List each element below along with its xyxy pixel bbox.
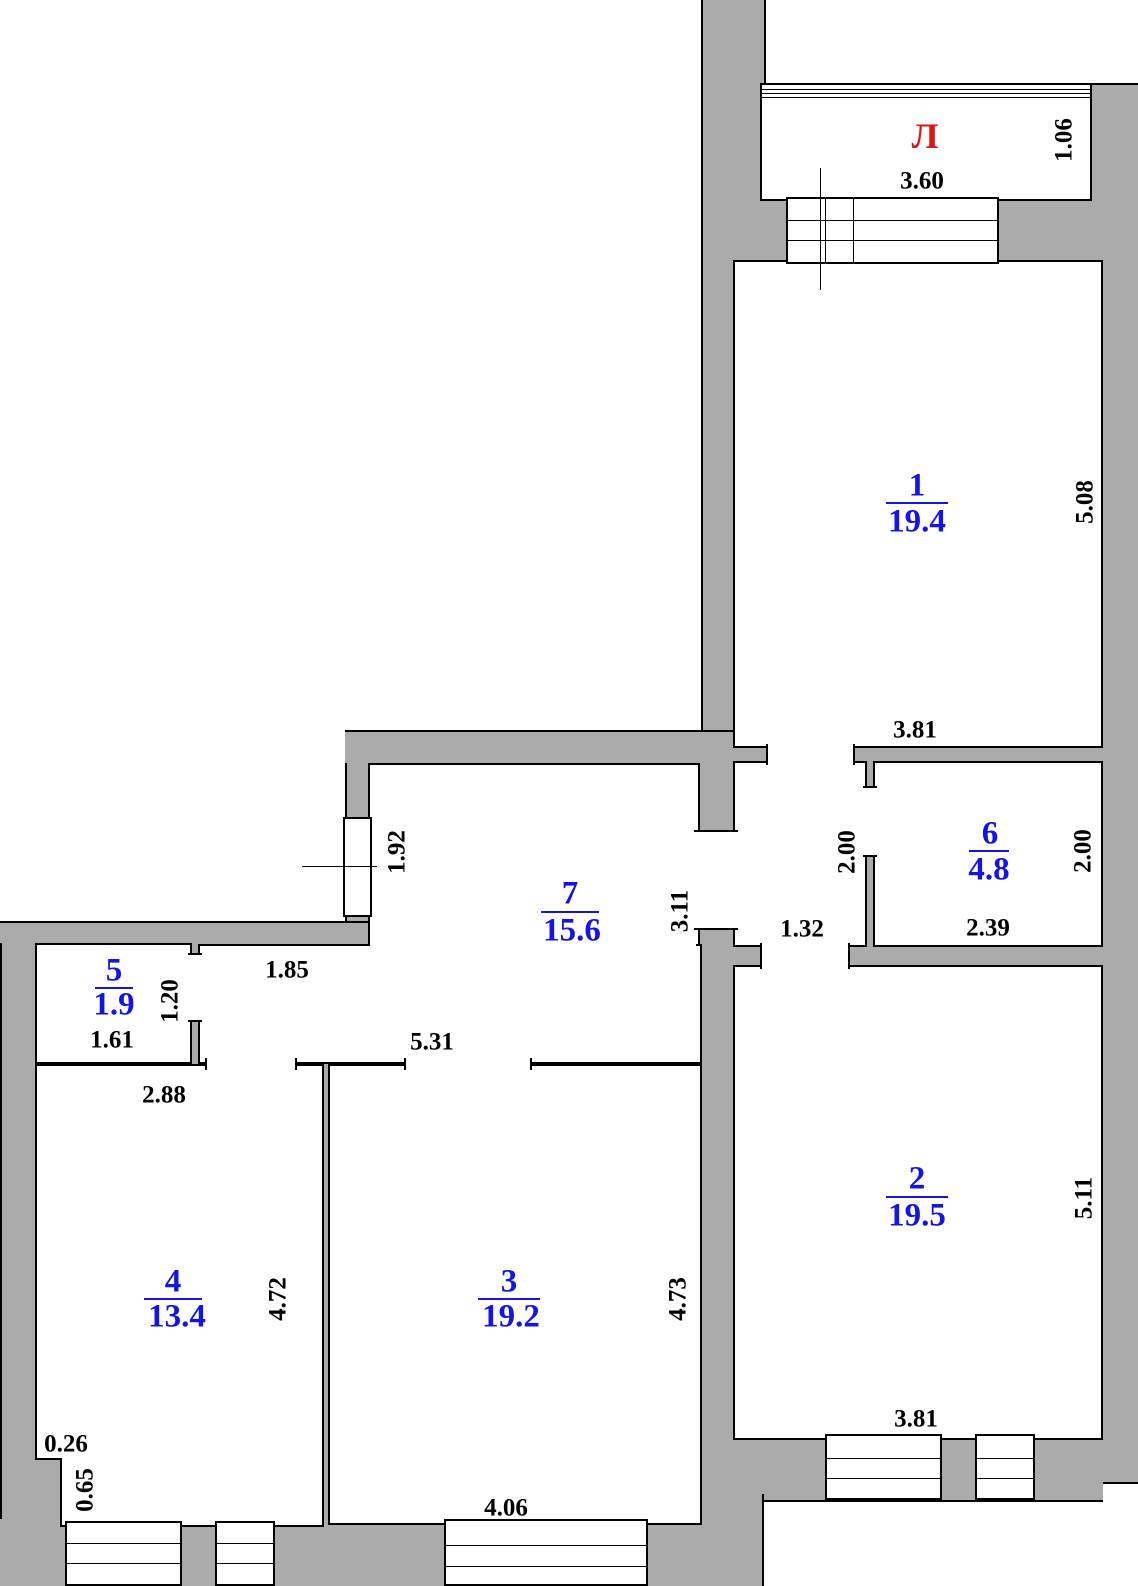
window-line (977, 1458, 1033, 1459)
dim-room-2-width: 3.81 (894, 1407, 938, 1432)
window (444, 1519, 648, 1586)
window-line (977, 1478, 1033, 1479)
dim-room-5-width: 1.61 (90, 1028, 134, 1053)
dim-room-7-height: 3.11 (668, 890, 693, 932)
room-5-number: 5 (106, 955, 123, 988)
dim-room-1-height: 5.08 (1073, 480, 1098, 524)
dim-hall-height: 2.00 (835, 830, 860, 874)
window-axis-line (820, 168, 821, 290)
window-line (217, 1543, 273, 1544)
dim-balcony-depth: 1.06 (1052, 118, 1077, 162)
balcony-window (786, 197, 999, 264)
room-2-area: 19.5 (888, 1200, 946, 1233)
dim-room-4-notch-width: 0.26 (44, 1432, 88, 1457)
room-4-area: 13.4 (148, 1301, 206, 1334)
dim-room-6-height: 2.00 (1071, 829, 1096, 873)
door-opening-room1-hall (766, 744, 855, 765)
window-line (825, 199, 826, 262)
dim-room-4-top: 2.88 (142, 1083, 186, 1108)
room-7-area: 15.6 (543, 915, 601, 948)
room-6-number: 6 (982, 818, 999, 851)
room-2-number: 2 (909, 1163, 926, 1196)
dim-room-1-width: 3.81 (893, 718, 937, 743)
room-1-number: 1 (909, 470, 926, 503)
room-4-number: 4 (165, 1266, 182, 1299)
dim-room-3-width: 4.06 (484, 1496, 528, 1521)
dim-room-3-height: 4.73 (666, 1277, 691, 1321)
room-3-area: 19.2 (482, 1301, 540, 1334)
door-opening-hall-room6 (863, 786, 877, 857)
door-opening-room7-hall (694, 830, 738, 930)
room-3-number: 3 (501, 1266, 518, 1299)
dim-room-4-notch-height: 0.65 (73, 1468, 98, 1512)
window (215, 1521, 275, 1586)
room-7-join (370, 944, 696, 950)
dim-room-5-height: 1.20 (158, 979, 183, 1023)
dim-room-2-height: 5.11 (1072, 1177, 1097, 1219)
dim-room-7-nook: 1.85 (265, 958, 309, 983)
window-line (67, 1543, 180, 1544)
window-line (67, 1563, 180, 1564)
dim-balcony-width: 3.60 (900, 169, 944, 194)
window-line (446, 1545, 646, 1546)
room-1-area: 19.4 (888, 506, 946, 539)
dim-room-7-window: 1.92 (385, 830, 410, 874)
room-5-area: 1.9 (93, 989, 134, 1022)
window-line (446, 1566, 646, 1567)
door-opening-room3 (404, 1058, 532, 1070)
room-7-window (343, 817, 372, 917)
window-line (827, 1458, 940, 1459)
room-7-number: 7 (562, 878, 579, 911)
window (975, 1434, 1035, 1500)
floor-plan: Л 3.60 1.06 1 19.4 5.08 3.81 2.00 1.32 6… (0, 0, 1138, 1586)
wall (1100, 197, 1138, 1484)
balcony-railing-line (762, 89, 1090, 90)
dim-tick-line (302, 866, 377, 867)
door-opening-hall-room2 (760, 943, 850, 969)
room-6-area: 4.8 (968, 854, 1009, 887)
dim-room-7-bottom: 5.31 (410, 1030, 454, 1055)
room-7-floor (368, 763, 700, 950)
dim-room-6-width: 2.39 (966, 916, 1010, 941)
window-line (853, 199, 854, 262)
wall (1088, 83, 1138, 205)
door-opening-room4 (205, 1058, 297, 1070)
window-line (217, 1563, 273, 1564)
window (65, 1521, 182, 1586)
wall (698, 965, 737, 1500)
dim-hall-width: 1.32 (780, 917, 824, 942)
dim-room-4-height: 4.72 (266, 1277, 291, 1321)
window-line (827, 1478, 940, 1479)
balcony-railing-line (762, 97, 1090, 98)
door-opening-room5 (188, 953, 202, 1022)
balcony-railing-line (762, 93, 1090, 94)
window (825, 1434, 942, 1500)
balcony-label: Л (912, 118, 939, 154)
room-4-wall-notch (35, 1458, 62, 1527)
